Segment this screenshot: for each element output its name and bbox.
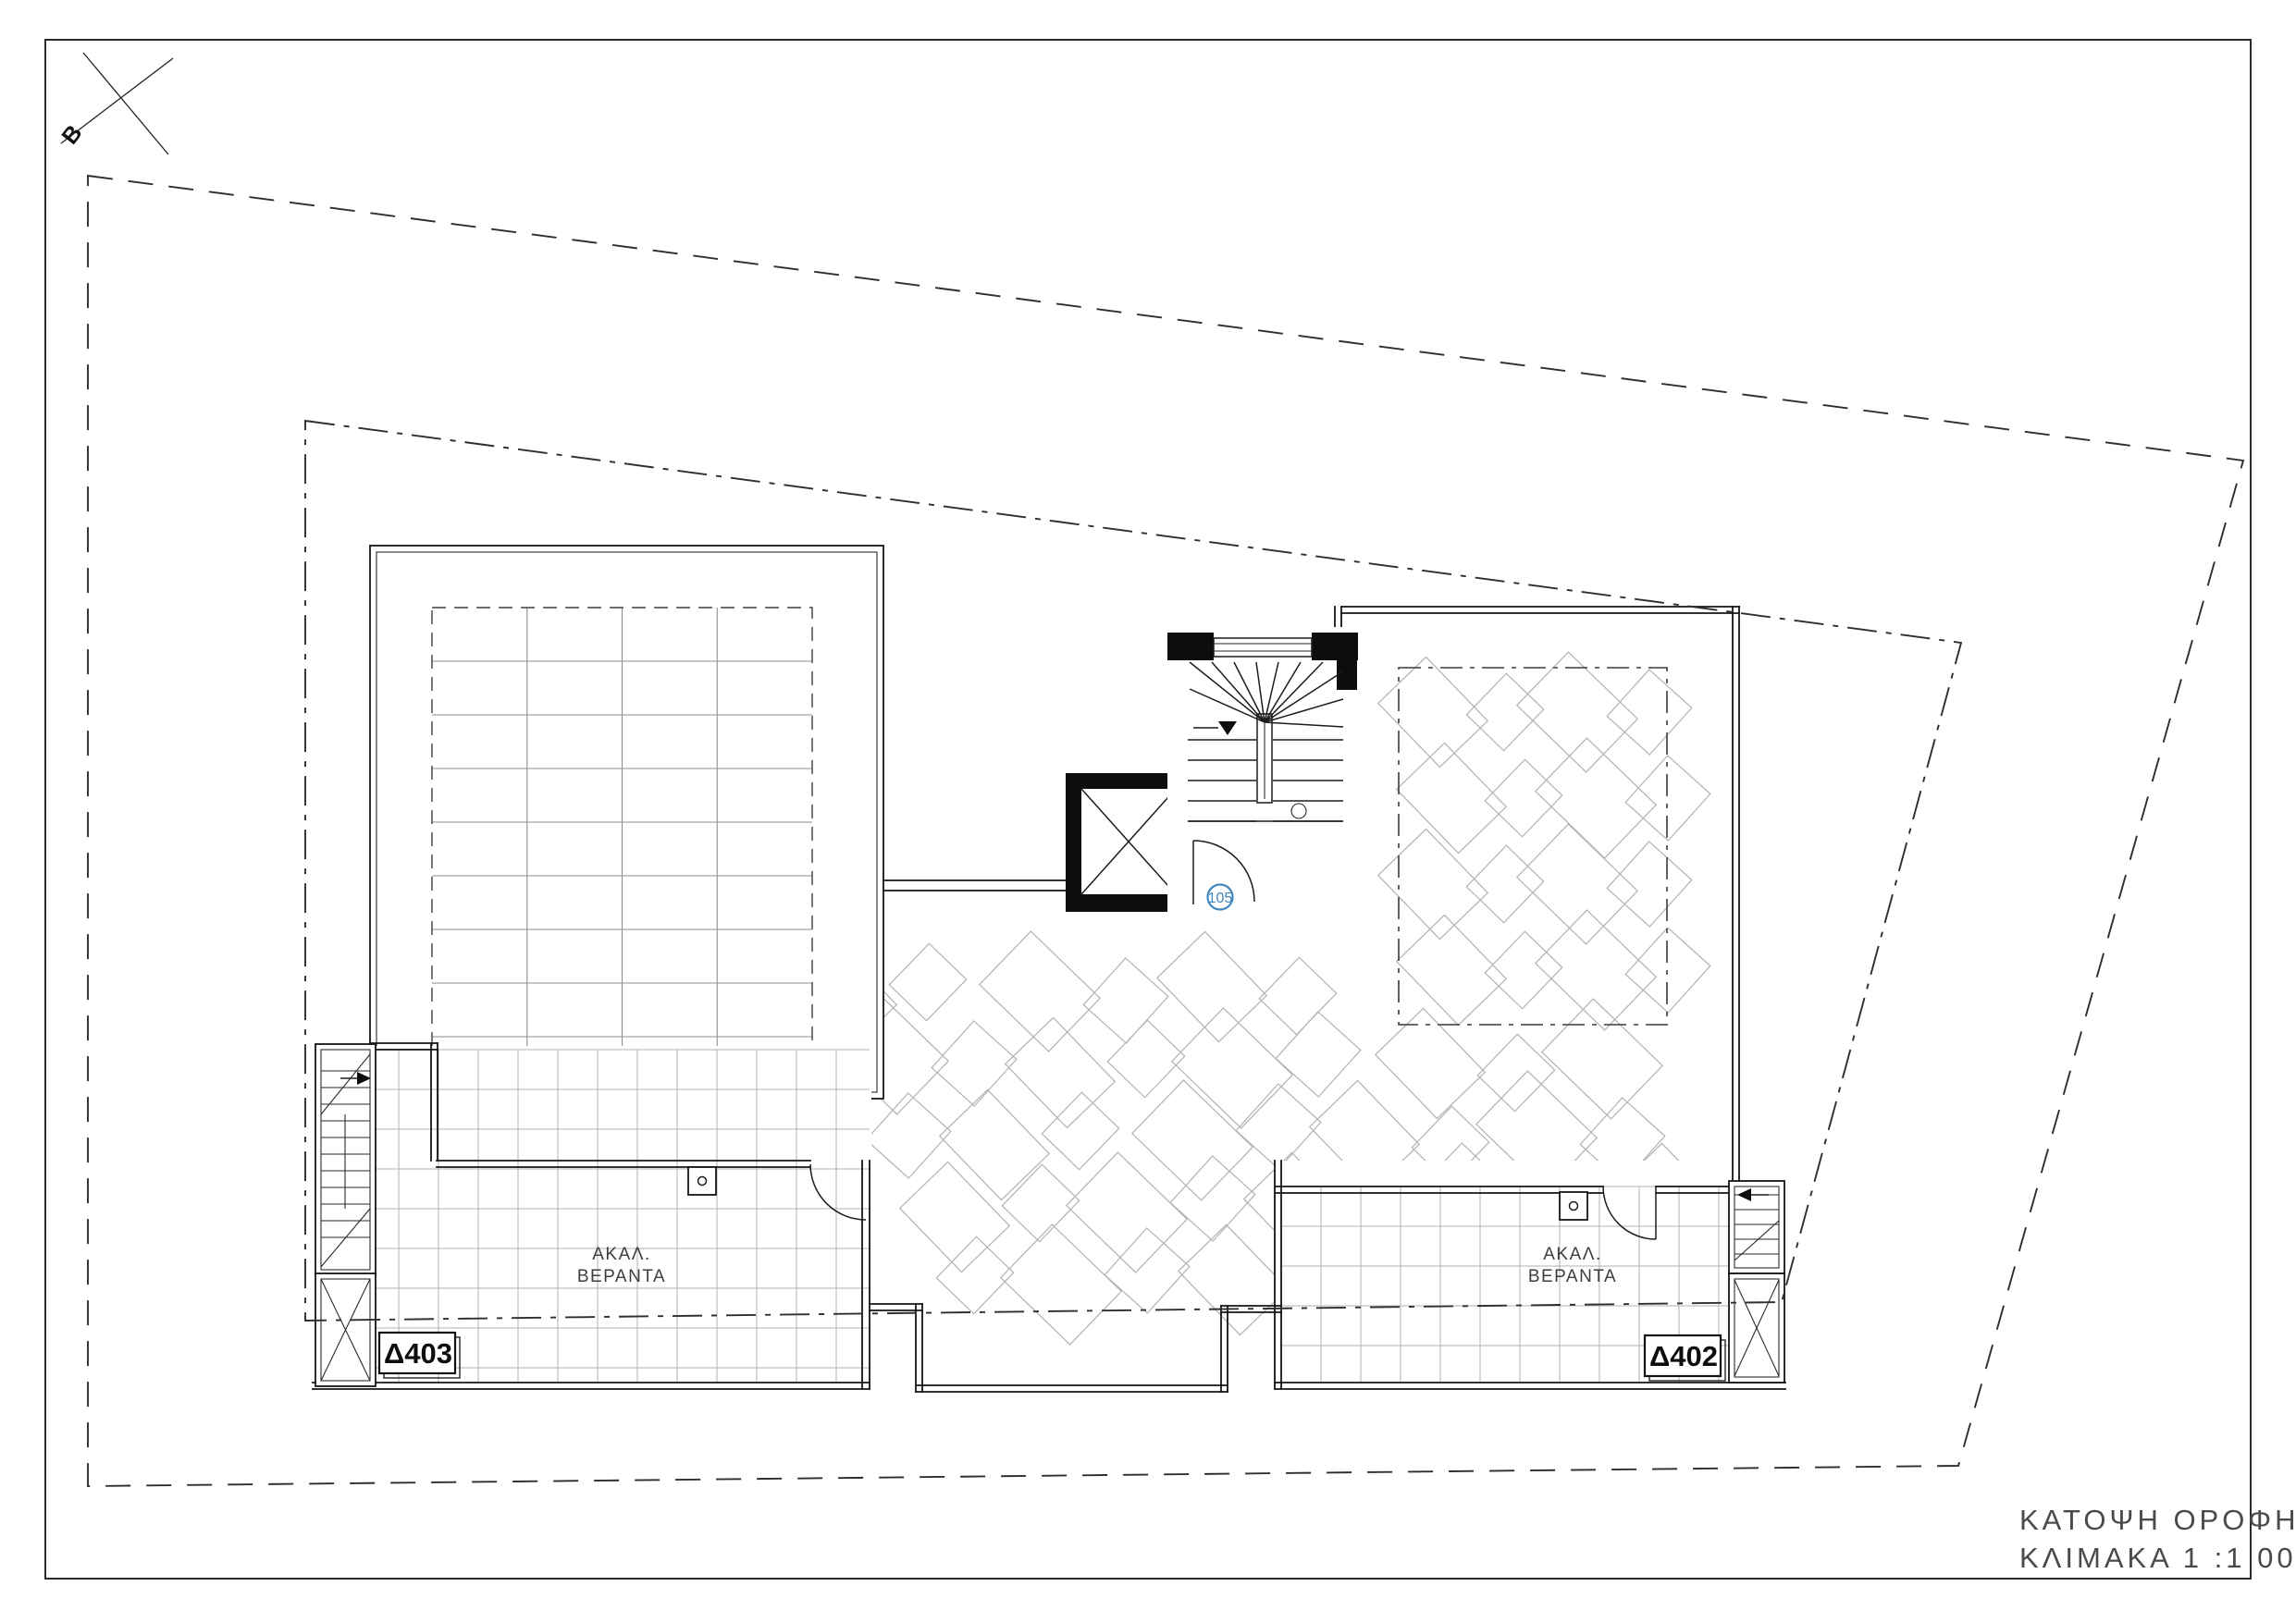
drawing-scale: ΚΛΙΜΑΚΑ 1 :1 00: [2019, 1542, 2296, 1574]
veranda-label-line1: ΑΚΑΛ.: [592, 1245, 651, 1264]
pergola-roof-block: [370, 546, 883, 1099]
paver-tile: [1378, 657, 1487, 767]
paver-tile: [889, 943, 966, 1020]
paver-tile: [1542, 999, 1662, 1119]
paver-tile: [1172, 1008, 1292, 1128]
paver-tile: [1536, 910, 1656, 1030]
veranda-label-line2: ΒΕΡΑΝΤΑ: [577, 1267, 666, 1286]
paver-tile: [1607, 670, 1692, 755]
fixture-box: [688, 1167, 716, 1195]
marker-line: [83, 53, 168, 154]
paver-tile: [1107, 1020, 1184, 1098]
paver-tile: [1485, 931, 1562, 1008]
paver-tile: [1477, 1034, 1554, 1112]
paver-tile: [1067, 1152, 1187, 1273]
fixture-left: [688, 1167, 716, 1195]
stair-wall-poche: [1167, 633, 1214, 660]
paver-tile: [1002, 1164, 1079, 1242]
paver-tile: [1083, 958, 1168, 1043]
paver-tile: [866, 1093, 951, 1178]
paver-tile: [1236, 1084, 1321, 1169]
paver-tile: [980, 931, 1100, 1051]
stair-wall-poche: [1337, 633, 1357, 690]
unit-tag-d403: Δ403: [379, 1333, 460, 1378]
unit-tag-d402: Δ402: [1645, 1335, 1725, 1381]
paver-tile: [1157, 931, 1266, 1041]
paver-tile: [1276, 1012, 1361, 1097]
stair-block-right: [1729, 1181, 1784, 1273]
paver-tile: [1397, 743, 1506, 853]
paver-tile: [1006, 1017, 1115, 1127]
room-tag-number: 105: [1208, 891, 1233, 906]
stair-block-left: [315, 1044, 376, 1275]
paver-tile: [1485, 759, 1562, 836]
paver-tile: [1625, 928, 1710, 1013]
paver-tile: [1042, 1092, 1118, 1170]
stair-core-floor: [1167, 627, 1364, 921]
paver-tile: [1466, 673, 1543, 750]
paver-tile: [1378, 829, 1487, 939]
paver-tile: [932, 1021, 1017, 1106]
paver-tile: [1607, 842, 1692, 927]
shaft-left: [315, 1273, 376, 1386]
room-tag-105: 105: [1208, 885, 1233, 910]
unit-tag-label: Δ402: [1649, 1340, 1718, 1372]
paver-tile: [1517, 652, 1637, 772]
veranda-label-line2: ΒΕΡΑΝΤΑ: [1528, 1267, 1617, 1286]
paver-tile: [1625, 756, 1710, 841]
drawing-title: ΚΑΤΟΨΗ ΟΡΟΦΗΣ: [2019, 1504, 2296, 1536]
veranda-label-line1: ΑΚΑΛ.: [1543, 1245, 1602, 1264]
benchmark-x-marker: B: [56, 53, 173, 154]
paver-tile: [1001, 1224, 1121, 1345]
title-block: ΚΑΤΟΨΗ ΟΡΟΦΗΣ ΚΛΙΜΑΚΑ 1 :1 00: [2019, 1504, 2296, 1574]
paver-tile: [1170, 1156, 1255, 1241]
paver-tile: [940, 1089, 1049, 1199]
paver-tile: [1397, 915, 1506, 1025]
paver-tile: [1132, 1080, 1253, 1200]
paver-tile: [1466, 845, 1543, 922]
paver-tile: [900, 1162, 1009, 1272]
paver-tile: [1179, 1224, 1288, 1334]
fixture-right: [1560, 1192, 1587, 1220]
unit-tag-label: Δ403: [384, 1337, 452, 1370]
fixture-box: [1560, 1192, 1587, 1220]
marker-label: B: [56, 120, 87, 149]
roof-plan-sheet: B: [0, 0, 2296, 1623]
stair-core: [1167, 627, 1364, 921]
shaft-right: [1729, 1273, 1784, 1383]
paver-tile: [936, 1236, 1013, 1314]
paver-tile: [1105, 1228, 1190, 1313]
paver-tile: [1259, 957, 1336, 1035]
